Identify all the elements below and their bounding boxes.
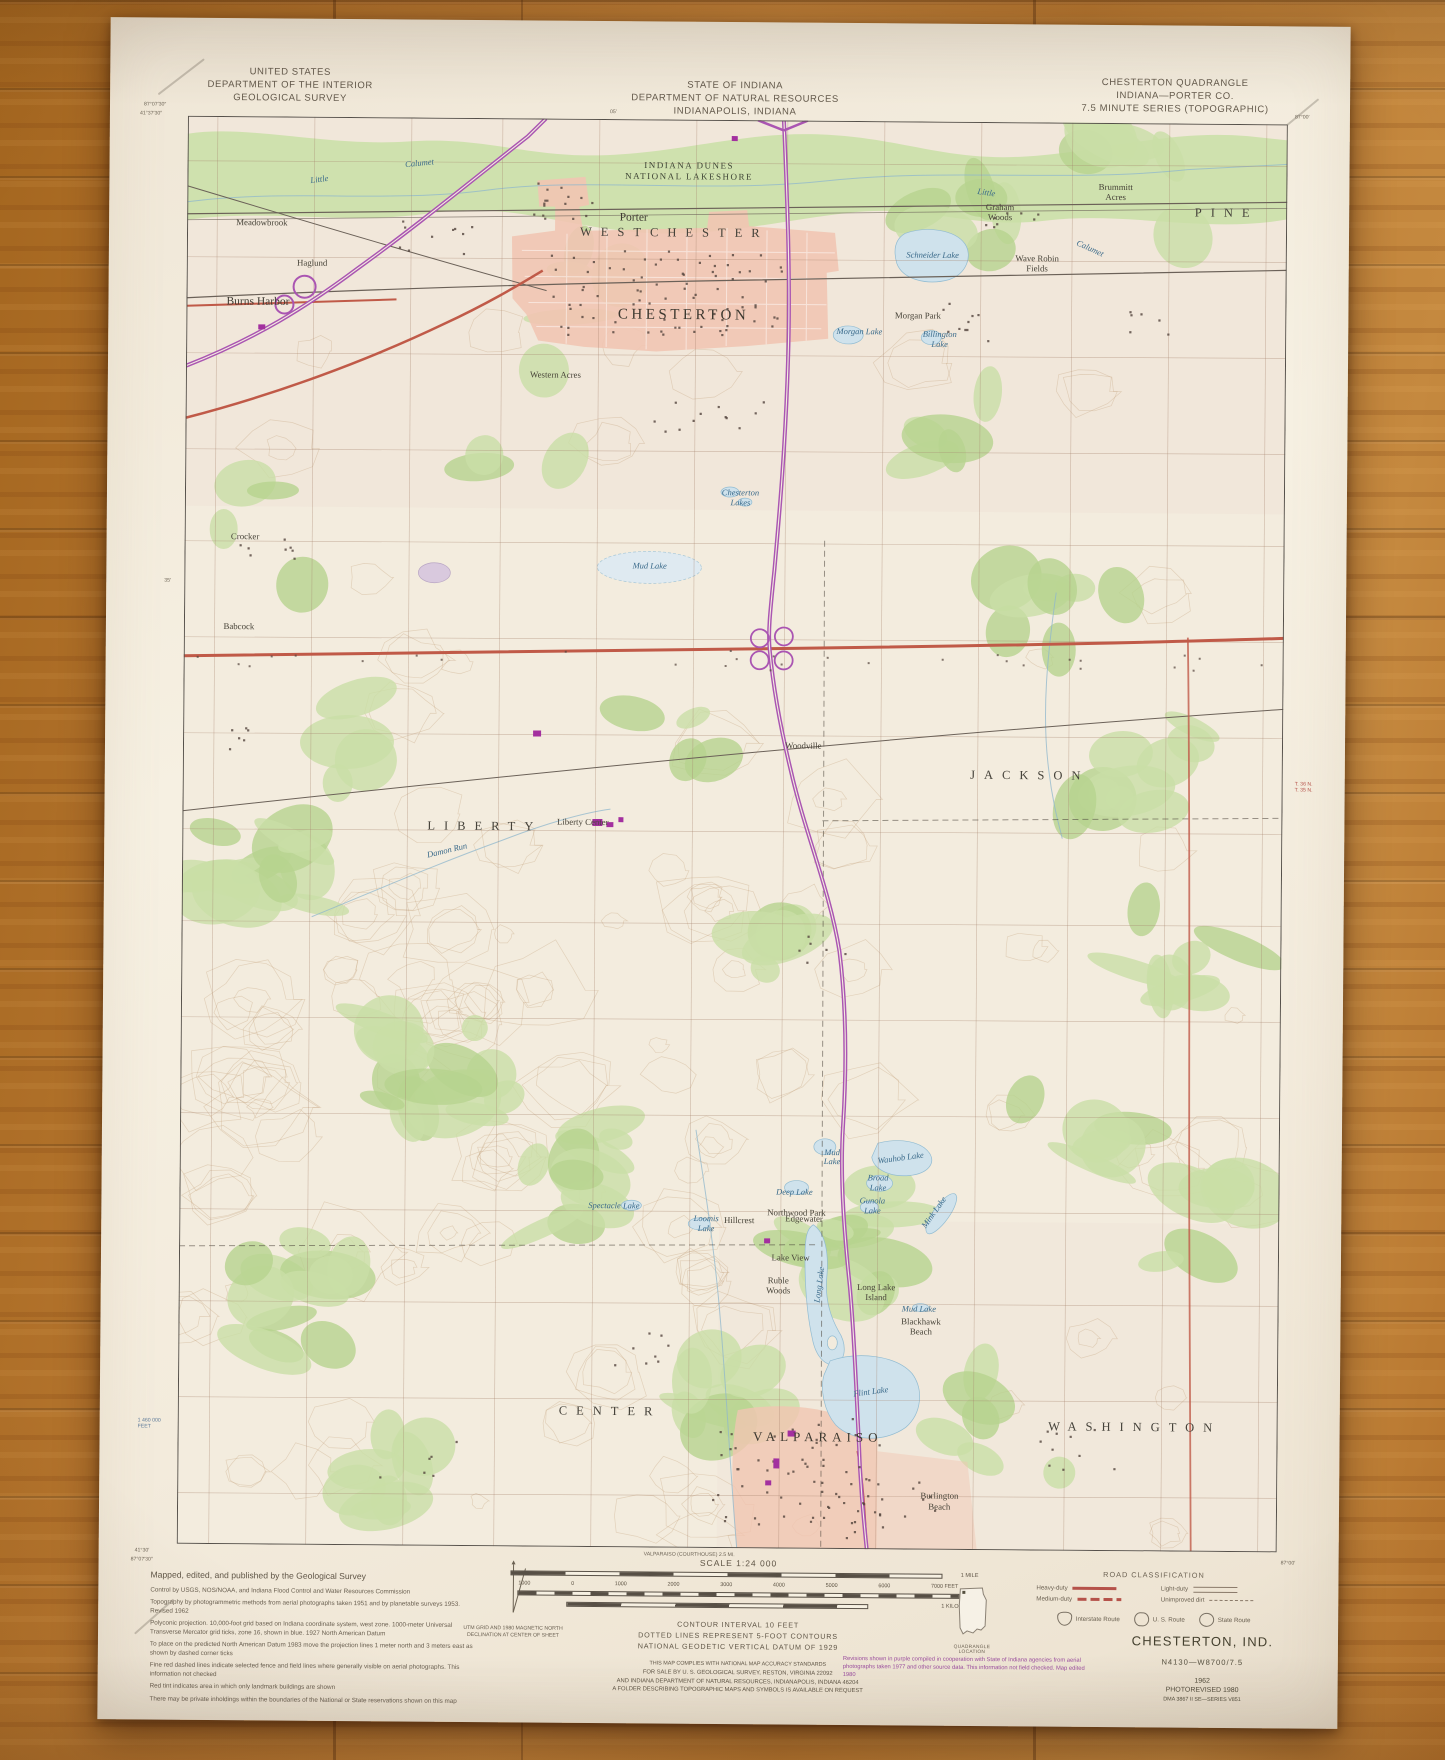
road-classification-title: ROAD CLASSIFICATION xyxy=(1036,1569,1271,1580)
township-range-label: T. 36 N. T. 35 N. xyxy=(1295,781,1313,793)
credits-title: Mapped, edited, and published by the Geo… xyxy=(150,1570,480,1584)
header-state: STATE OF INDIANA DEPARTMENT OF NATURAL R… xyxy=(620,79,850,119)
map-label: Long Lake xyxy=(813,1266,827,1303)
map-label: Broad Lake xyxy=(868,1174,889,1194)
route-shield-icon xyxy=(1134,1612,1149,1626)
map-label: Deep Lake xyxy=(776,1188,813,1198)
map-labels: WESTCHESTERPINEJACKSONLIBERTYCENTERWASHI… xyxy=(177,116,1288,1553)
map-label: Damon Run xyxy=(426,841,468,860)
roadclass-grid: Heavy-dutyLight-dutyMedium-dutyUnimprove… xyxy=(1036,1584,1271,1604)
map-label: PINE xyxy=(1195,205,1259,220)
map-photorevised: PHOTOREVISED 1980 xyxy=(1090,1686,1315,1695)
map-label: Brummitt Acres xyxy=(1099,181,1133,201)
route-badge: U. S. Route xyxy=(1134,1612,1185,1626)
map-label: Billington Lake xyxy=(923,330,957,350)
map-label: Flint Lake xyxy=(853,1385,889,1399)
scale-tick: 6000 xyxy=(878,1583,890,1589)
map-label: Spectacle Lake xyxy=(588,1201,639,1211)
map-label: Wauhob Lake xyxy=(877,1150,924,1166)
map-label: Liberty Center xyxy=(557,816,609,827)
map-label: Lake View xyxy=(771,1252,809,1262)
roadclass-label: Unimproved dirt xyxy=(1161,1596,1205,1603)
route-shield-icon xyxy=(1199,1613,1214,1627)
map-year: 1962 xyxy=(1090,1677,1315,1686)
map-label: Mud Lake xyxy=(633,561,667,571)
map-sheet: UNITED STATES DEPARTMENT OF THE INTERIOR… xyxy=(97,17,1350,1729)
map-label: Wave Robin Fields xyxy=(1015,254,1059,275)
map-label: CENTER xyxy=(559,1404,662,1419)
roadclass-line-sample xyxy=(1209,1600,1253,1601)
map-body: WESTCHESTERPINEJACKSONLIBERTYCENTERWASHI… xyxy=(177,116,1288,1553)
roadclass-label: Medium-duty xyxy=(1036,1595,1072,1602)
credit-line: Polyconic projection. 10,000-foot grid b… xyxy=(150,1620,480,1640)
route-badge: Interstate Route xyxy=(1057,1612,1120,1626)
map-label: Calumet xyxy=(1075,238,1105,259)
road-classification: ROAD CLASSIFICATION Heavy-dutyLight-duty… xyxy=(1036,1569,1271,1627)
map-label: Little xyxy=(310,174,329,186)
credit-line: There may be private inholdings within t… xyxy=(149,1695,479,1706)
corner-bl-lat: 41°30′ xyxy=(135,1547,150,1553)
map-label: WESTCHESTER xyxy=(580,224,769,240)
scale-tick: 2000 xyxy=(667,1582,679,1588)
map-label: Crocker xyxy=(231,531,259,541)
corner-br-lon: 87°00′ xyxy=(1281,1560,1296,1566)
grid-feet-label: 1 460 000 FEET xyxy=(138,1417,161,1429)
scale-tick: 5000 xyxy=(826,1583,838,1589)
route-shield-icon xyxy=(1057,1612,1072,1626)
scale-tick: 1000 xyxy=(615,1581,627,1587)
map-label: Schneider Lake xyxy=(906,251,959,261)
map-label: Edgewater xyxy=(785,1214,823,1224)
accuracy-note: THIS MAP COMPLIES WITH NATIONAL MAP ACCU… xyxy=(649,1661,826,1668)
header-agency: UNITED STATES DEPARTMENT OF THE INTERIOR… xyxy=(180,66,400,106)
route-badge-label: State Route xyxy=(1218,1616,1251,1623)
roadclass-badges: Interstate RouteU. S. RouteState Route xyxy=(1036,1611,1271,1627)
roadclass-entry: Light-duty xyxy=(1161,1585,1272,1593)
map-label: LIBERTY xyxy=(427,819,542,834)
map-label: Haglund xyxy=(297,257,327,267)
map-label: Porter xyxy=(620,211,648,224)
map-label: Calumet xyxy=(405,157,435,170)
scale-tick: 4000 xyxy=(773,1582,785,1588)
revision-note: Revisions shown in purple compiled in co… xyxy=(843,1655,1093,1681)
roadclass-line-sample xyxy=(1077,1598,1121,1601)
map-label: WASHINGTON xyxy=(1048,1419,1221,1435)
map-label: CHESTERTON xyxy=(618,306,749,324)
route-badge: State Route xyxy=(1199,1613,1251,1627)
map-label: Morgan Lake xyxy=(837,327,883,337)
credit-line: Red tint indicates area in which only la… xyxy=(150,1683,480,1694)
map-label: Mud Lake xyxy=(824,1148,841,1168)
map-label: Woodville xyxy=(785,741,822,751)
quadrangle-location-caption: QUADRANGLE LOCATION xyxy=(940,1645,1004,1656)
route-badge-label: Interstate Route xyxy=(1076,1615,1120,1622)
map-name: CHESTERTON, IND. xyxy=(1090,1633,1315,1650)
map-label: Loomis Lake xyxy=(694,1214,719,1234)
header-quad-title: CHESTERTON QUADRANGLE INDIANA—PORTER CO.… xyxy=(1050,77,1300,117)
roadclass-label: Light-duty xyxy=(1161,1585,1188,1592)
roadclass-line-sample xyxy=(1073,1587,1117,1590)
map-series: DMA 3867 II SE—SERIES V851 xyxy=(1090,1696,1315,1704)
map-code: N4130—W8700/7.5 xyxy=(1090,1657,1315,1668)
quadrangle-location: QUADRANGLE LOCATION xyxy=(940,1586,1005,1656)
map-name-block: CHESTERTON, IND. N4130—W8700/7.5 1962 PH… xyxy=(1090,1633,1316,1704)
map-label: VALPARAISO xyxy=(753,1429,883,1445)
sale-note: FOR SALE BY U. S. GEOLOGICAL SURVEY, RES… xyxy=(612,1669,863,1694)
route-badge-label: U. S. Route xyxy=(1153,1616,1185,1623)
map-label: Burns Harbor xyxy=(226,295,289,309)
map-label: Hillcrest xyxy=(724,1215,754,1225)
map-label: Mud Lake xyxy=(902,1305,936,1315)
map-label: Ruble Woods xyxy=(766,1275,790,1295)
scale-tick: 3000 xyxy=(720,1582,732,1588)
credits-list: Control by USGS, NOS/NOAA, and Indiana F… xyxy=(149,1586,480,1706)
credit-line: Topography by photogrammetric methods fr… xyxy=(150,1599,480,1619)
map-label: Chesterton Lakes xyxy=(722,489,759,509)
map-label: Meadowbrook xyxy=(236,217,287,228)
left-edge-minute: 35′ xyxy=(164,578,171,584)
contour-interval-note: CONTOUR INTERVAL 10 FEET DOTTED LINES RE… xyxy=(498,1618,978,1654)
roadclass-entry: Medium-duty xyxy=(1036,1595,1147,1603)
roadclass-line-sample xyxy=(1193,1586,1237,1592)
indiana-outline xyxy=(955,1586,989,1638)
map-label: Little xyxy=(976,187,995,199)
credit-line: Fine red dashed lines indicate selected … xyxy=(150,1662,480,1682)
map-label: Graham Woods xyxy=(986,202,1015,222)
scale-bar-km xyxy=(566,1602,868,1609)
map-label: Long Lake Island xyxy=(857,1282,896,1303)
roadclass-entry: Heavy-duty xyxy=(1036,1584,1147,1592)
map-label: Burlington Beach xyxy=(920,1491,958,1512)
scale-bar-mile xyxy=(511,1570,943,1578)
scale-mile-label: 1 MILE xyxy=(961,1572,979,1578)
corner-bl-lon: 87°07′30″ xyxy=(131,1556,153,1562)
scale-tick: 1000 xyxy=(518,1580,530,1586)
map-label: Mink Lake xyxy=(919,1195,948,1230)
map-label: Babcock xyxy=(223,621,254,631)
map-label: Western Acres xyxy=(530,369,581,380)
scale-tick: 0 xyxy=(571,1581,574,1587)
corner-tl-lat: 41°37′30″ xyxy=(140,110,162,116)
map-label: Morgan Park xyxy=(895,310,941,320)
map-label: Blackhawk Beach xyxy=(901,1317,941,1338)
top-edge-minute: 05′ xyxy=(610,109,617,115)
roadclass-entry: Unimproved dirt xyxy=(1161,1596,1272,1604)
credit-line: Control by USGS, NOS/NOAA, and Indiana F… xyxy=(150,1586,480,1597)
map-label: Gunola Lake xyxy=(860,1197,886,1217)
map-label: INDIANA DUNES NATIONAL LAKESHORE xyxy=(625,160,753,182)
credit-line: To place on the predicted North American… xyxy=(150,1641,480,1661)
credits-block: Mapped, edited, and published by the Geo… xyxy=(149,1570,480,1711)
roadclass-label: Heavy-duty xyxy=(1036,1584,1067,1591)
map-label: JACKSON xyxy=(970,767,1089,782)
corner-tl-lon: 87°07′30″ xyxy=(144,101,166,107)
